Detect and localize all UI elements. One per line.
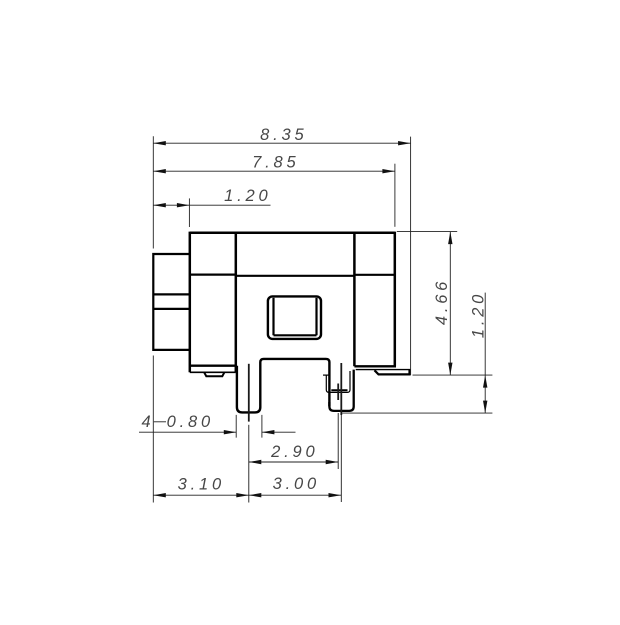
svg-text:2.90: 2.90 [270, 443, 318, 461]
svg-text:7.85: 7.85 [252, 153, 299, 171]
svg-text:0.80: 0.80 [167, 413, 214, 431]
svg-text:1.20: 1.20 [470, 291, 488, 338]
svg-text:8.35: 8.35 [260, 126, 307, 144]
svg-text:4: 4 [142, 413, 155, 431]
svg-text:3.10: 3.10 [178, 476, 225, 494]
svg-text:1.20: 1.20 [224, 187, 271, 205]
svg-text:4.66: 4.66 [433, 278, 451, 325]
svg-text:3.00: 3.00 [273, 475, 320, 493]
